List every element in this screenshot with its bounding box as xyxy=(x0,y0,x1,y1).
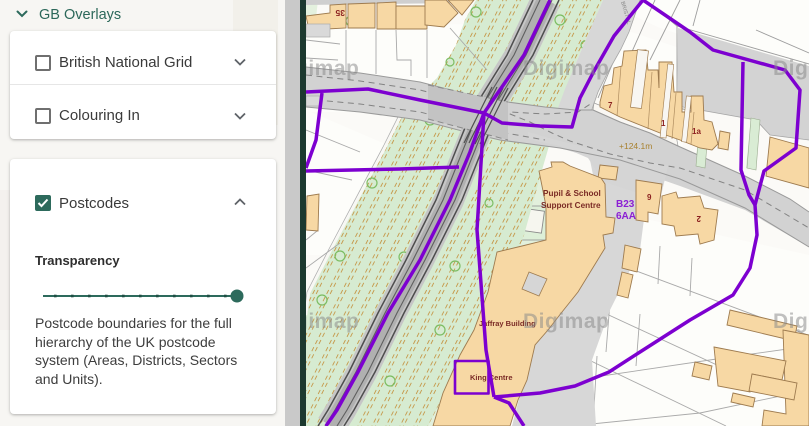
svg-text:B23: B23 xyxy=(616,199,635,210)
svg-text:Pupil & School: Pupil & School xyxy=(543,189,601,198)
svg-text:1: 1 xyxy=(661,119,666,128)
svg-text:Support Centre: Support Centre xyxy=(541,201,601,210)
svg-text:Digimap: Digimap xyxy=(306,310,359,333)
svg-text:Digimap: Digimap xyxy=(523,310,609,333)
svg-text:+124.1m: +124.1m xyxy=(619,141,652,151)
svg-text:6AA: 6AA xyxy=(616,211,636,222)
svg-text:Digimap: Digimap xyxy=(523,57,609,80)
svg-text:2: 2 xyxy=(696,214,701,223)
svg-text:Digimap: Digimap xyxy=(773,57,809,80)
svg-text:Digimap: Digimap xyxy=(306,57,359,80)
svg-text:9: 9 xyxy=(647,193,652,202)
svg-text:1a: 1a xyxy=(692,127,701,136)
svg-text:35: 35 xyxy=(335,8,345,18)
svg-text:Digimap: Digimap xyxy=(773,310,809,333)
svg-text:7: 7 xyxy=(608,101,613,110)
